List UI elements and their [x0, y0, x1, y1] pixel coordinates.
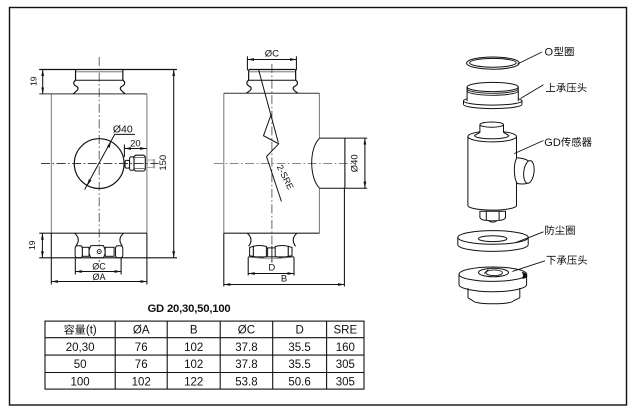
svg-text:D: D [268, 262, 275, 273]
svg-text:19: 19 [28, 76, 38, 86]
svg-text:53.8: 53.8 [235, 377, 257, 389]
svg-text:102: 102 [184, 359, 203, 371]
svg-text:37.8: 37.8 [235, 342, 257, 354]
svg-text:Ø40: Ø40 [349, 154, 360, 172]
svg-text:GD 20,30,50,100: GD 20,30,50,100 [147, 303, 230, 315]
svg-text:GD: GD [544, 137, 561, 149]
svg-text:Ø40: Ø40 [113, 123, 133, 135]
svg-text:(t): (t) [86, 325, 97, 337]
svg-text:37.8: 37.8 [235, 359, 257, 371]
svg-text:35.5: 35.5 [288, 359, 310, 371]
svg-text:SRE: SRE [333, 325, 357, 337]
svg-text:102: 102 [184, 342, 203, 354]
svg-text:50.6: 50.6 [288, 377, 310, 389]
svg-text:ØC: ØC [238, 325, 255, 337]
svg-text:122: 122 [184, 377, 203, 389]
svg-text:19: 19 [27, 240, 37, 250]
svg-text:B: B [281, 273, 287, 284]
svg-text:50: 50 [74, 359, 87, 371]
svg-text:ØC: ØC [265, 48, 279, 59]
svg-text:35.5: 35.5 [288, 342, 310, 354]
svg-text:ØC: ØC [92, 262, 106, 272]
svg-text:O: O [545, 46, 554, 58]
svg-text:ØA: ØA [133, 325, 150, 337]
svg-text:102: 102 [132, 377, 151, 389]
svg-text:305: 305 [336, 377, 355, 389]
svg-text:150: 150 [158, 155, 169, 171]
svg-text:100: 100 [71, 377, 90, 389]
svg-text:76: 76 [135, 342, 148, 354]
svg-text:160: 160 [336, 342, 355, 354]
svg-text:D: D [295, 325, 303, 337]
svg-text:76: 76 [135, 359, 148, 371]
svg-text:B: B [190, 325, 198, 337]
svg-text:20,30: 20,30 [66, 342, 95, 354]
svg-text:305: 305 [336, 359, 355, 371]
svg-text:20: 20 [130, 138, 141, 149]
svg-text:ØA: ØA [92, 272, 105, 282]
